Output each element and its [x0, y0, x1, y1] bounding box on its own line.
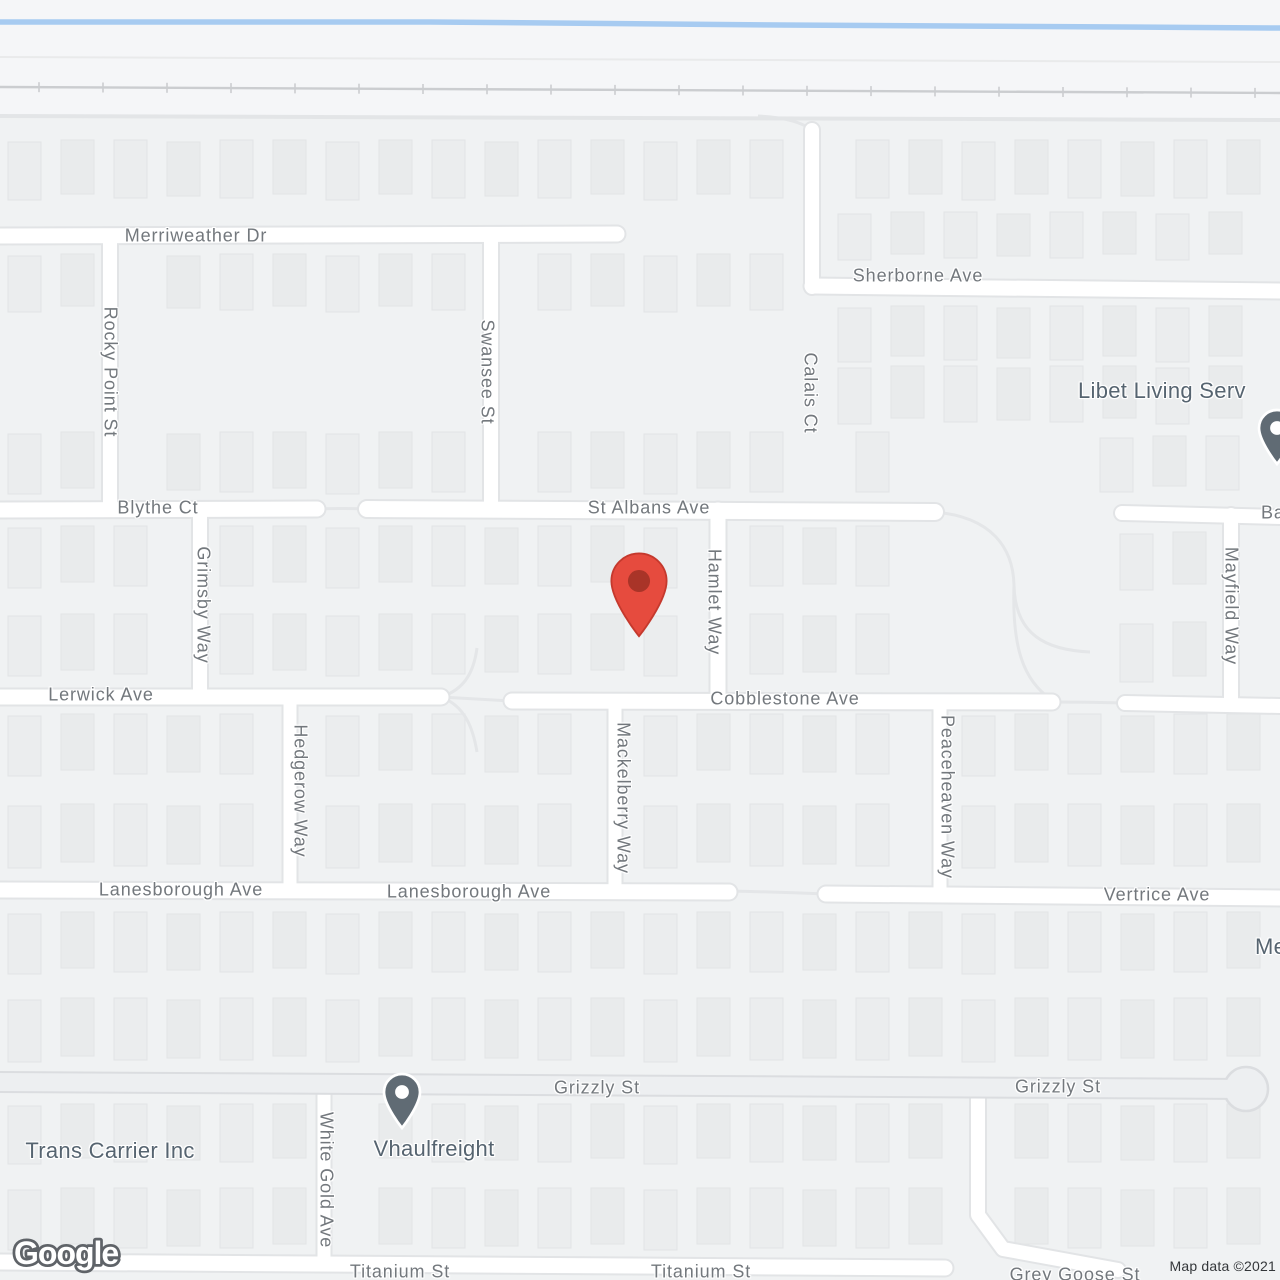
map-data-attribution: Map data ©2021: [1169, 1258, 1276, 1274]
map-canvas[interactable]: Merriweather Dr Sherborne Ave Blythe Ct …: [0, 0, 1280, 1280]
map-tiles-layer[interactable]: [0, 0, 1280, 1280]
google-logo[interactable]: Google: [10, 1234, 140, 1274]
google-logo-text: Google: [14, 1235, 118, 1271]
